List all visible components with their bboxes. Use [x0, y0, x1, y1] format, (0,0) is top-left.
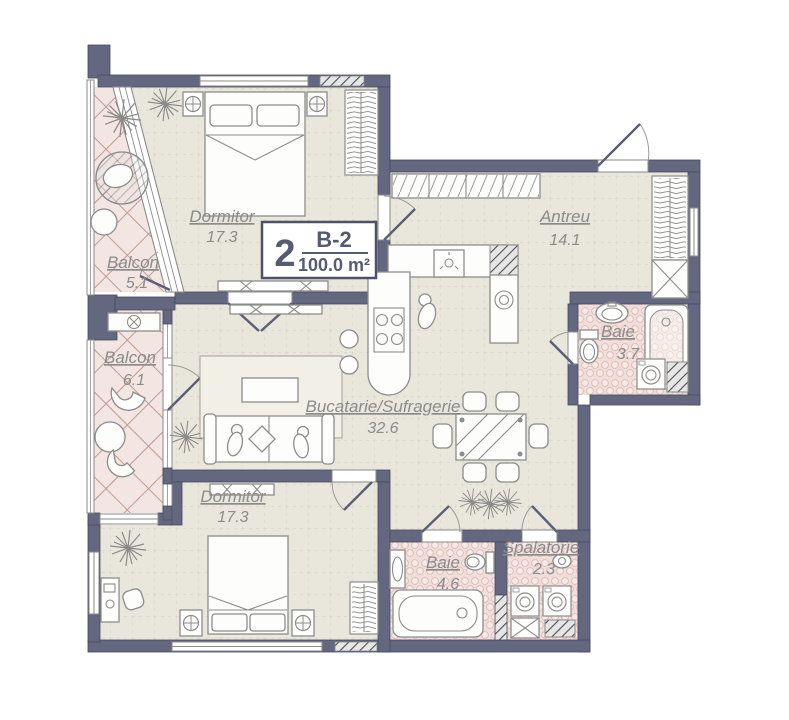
- radiator-bottom: [335, 642, 377, 651]
- window-right-antreu: [690, 208, 698, 256]
- toilet-top: [580, 330, 598, 363]
- window-balcony-mid-bottom: [100, 514, 158, 524]
- unit-rooms-count: 2: [274, 233, 295, 275]
- unit-badge: 2 B-2 100.0 m²: [262, 222, 376, 278]
- room-label-antreu: Antreu: [539, 207, 591, 226]
- room-label-baie-top: Baie: [601, 322, 635, 341]
- ac-unit: [108, 313, 160, 331]
- wardrobe-dormitor-top: [345, 90, 378, 175]
- washing-machine-2: [543, 586, 571, 616]
- room-label-balcon-mid: Balcon: [104, 348, 156, 367]
- entry-door: [598, 124, 649, 172]
- room-area-balcon-top: 5.1: [126, 275, 148, 292]
- room-area-baie-bottom: 4.6: [437, 576, 459, 593]
- room-area-spalatorie: 2.3: [532, 561, 555, 578]
- room-area-dormitor-top: 17.3: [206, 229, 237, 246]
- window-living-balcony: [163, 310, 172, 520]
- radiator-top: [320, 76, 364, 86]
- room-area-dormitor-bottom: 17.3: [217, 509, 248, 526]
- sofa: [204, 414, 334, 464]
- room-area-baie-top: 3.7: [617, 346, 640, 363]
- bathtub-bottom: [393, 590, 483, 637]
- floor-plan-svg: Dormitor 17.3 Antreu 14.1 Balcon 5.1 Bal…: [0, 0, 789, 720]
- balcony-rail-top: [87, 80, 94, 295]
- washing-machine-1: [511, 586, 539, 616]
- kitchen-island: [368, 272, 410, 395]
- window-left-bedroom: [89, 552, 99, 614]
- coffee-table: [242, 378, 298, 402]
- room-label-spalatorie: Spalatorie: [503, 538, 580, 557]
- laundry-mat: [545, 620, 575, 637]
- room-area-antreu: 14.1: [549, 232, 580, 249]
- bar-stool: [340, 330, 358, 348]
- shoe-cabinet: [652, 260, 688, 298]
- room-area-bucatarie: 32.6: [367, 420, 398, 437]
- bar-stool: [340, 356, 358, 374]
- floor-balcon-mid: [93, 310, 163, 513]
- laundry-cabinet: [511, 618, 539, 638]
- room-label-baie-bottom: Baie: [426, 553, 460, 572]
- room-label-dormitor-top: Dormitor: [189, 207, 256, 226]
- balcony-rail-mid: [87, 340, 94, 513]
- media-unit-living: [230, 305, 322, 314]
- hall-closet: [392, 174, 540, 198]
- room-label-dormitor-bottom: Dormitor: [200, 487, 267, 506]
- wardrobe-dormitor-bottom: [350, 582, 378, 634]
- media-unit-dormitor-top: [218, 281, 328, 291]
- hall-wardrobe: [652, 176, 688, 260]
- room-area-balcon-mid: 6.1: [123, 372, 145, 389]
- window-bottom: [172, 642, 322, 651]
- bath-mat: [667, 362, 688, 392]
- room-label-bucatarie: Bucatarie/Sufragerie: [306, 397, 461, 416]
- room-label-balcon-top: Balcon: [107, 253, 159, 272]
- washing-machine-baie-top: [637, 359, 665, 389]
- window-top: [200, 76, 308, 86]
- sink-baie-bottom: [390, 550, 405, 588]
- unit-total-area: 100.0 m²: [298, 255, 370, 275]
- floor-plan-page: Dormitor 17.3 Antreu 14.1 Balcon 5.1 Bal…: [0, 0, 789, 720]
- unit-code: B-2: [316, 227, 351, 252]
